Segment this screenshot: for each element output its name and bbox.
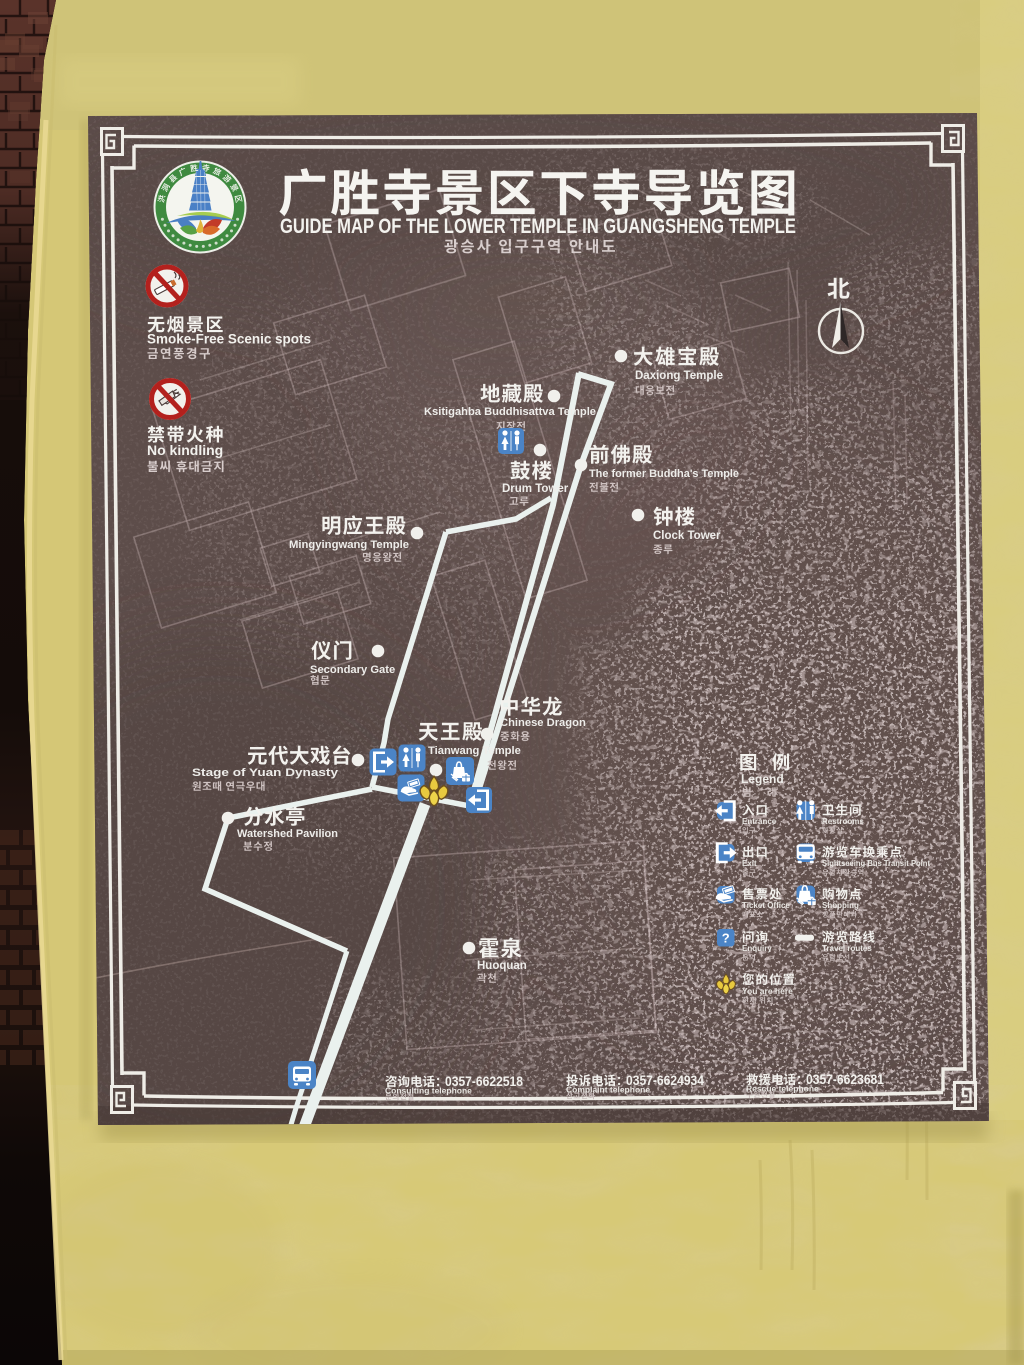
- svg-text:Huoquan: Huoquan: [477, 960, 527, 972]
- svg-text:Restrooms: Restrooms: [822, 817, 864, 826]
- svg-text:Watershed Pavilion: Watershed Pavilion: [237, 828, 338, 840]
- svg-text:Chinese Dragon: Chinese Dragon: [500, 717, 586, 729]
- svg-text:Secondary Gate: Secondary Gate: [310, 664, 395, 676]
- svg-text:Exit: Exit: [742, 859, 757, 868]
- svg-text:Enquiry: Enquiry: [742, 944, 772, 953]
- svg-text:Mingyingwang Temple: Mingyingwang Temple: [289, 539, 409, 551]
- svg-text:Ticket Office: Ticket Office: [742, 901, 790, 910]
- svg-text:Sightseeing Bus Transit Point: Sightseeing Bus Transit Point: [822, 859, 930, 868]
- svg-text:No kindling: No kindling: [147, 442, 223, 458]
- svg-text:GUIDE MAP OF THE LOWER TEMPLE: GUIDE MAP OF THE LOWER TEMPLE IN GUANGSH…: [280, 215, 796, 238]
- svg-text:You are here: You are here: [742, 986, 793, 996]
- svg-text:Clock Tower: Clock Tower: [653, 530, 721, 542]
- svg-text:Daxiong Temple: Daxiong Temple: [635, 370, 723, 382]
- svg-text:Drum Tower: Drum Tower: [502, 483, 569, 495]
- svg-text:Ksitigahba Buddhisattva Temple: Ksitigahba Buddhisattva Temple: [424, 406, 596, 418]
- svg-text:Travel routes: Travel routes: [822, 944, 872, 953]
- svg-text:?: ?: [722, 930, 730, 945]
- svg-text:Stage of Yuan Dynasty: Stage of Yuan Dynasty: [192, 767, 339, 779]
- svg-text:Shopping: Shopping: [822, 901, 859, 910]
- svg-text:Entrance: Entrance: [742, 817, 777, 826]
- svg-text:The former Buddha's Temple: The former Buddha's Temple: [589, 468, 739, 480]
- svg-text:Legend: Legend: [741, 772, 784, 786]
- svg-text:Smoke-Free Scenic spots: Smoke-Free Scenic spots: [147, 331, 311, 347]
- svg-text:Tianwang Temple: Tianwang Temple: [428, 745, 521, 757]
